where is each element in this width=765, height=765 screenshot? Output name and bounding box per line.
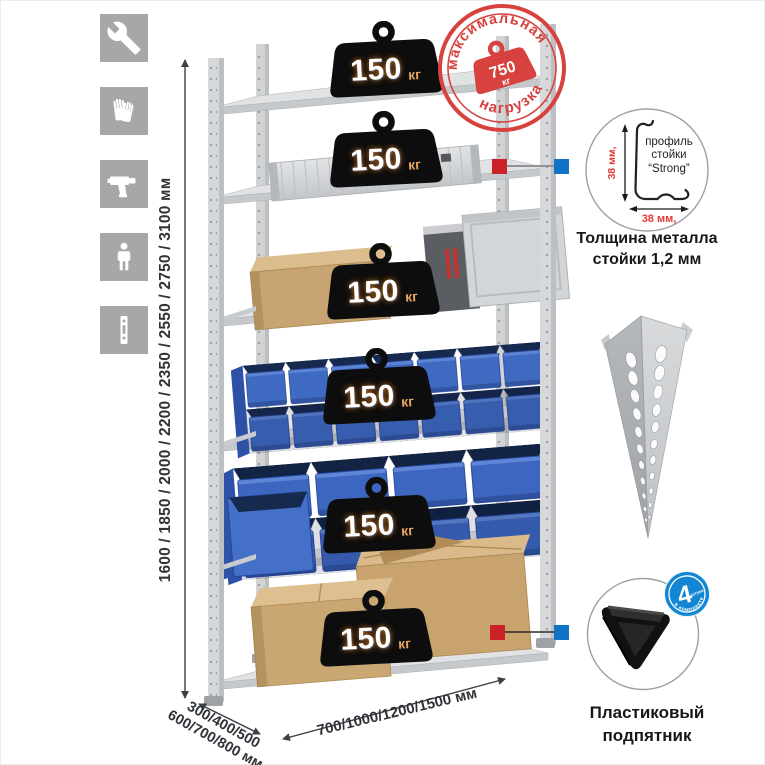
post-profile-detail: 38 мм, 38 мм, профиль стойки “Strong” [584, 107, 710, 233]
svg-text:“Strong”: “Strong” [648, 163, 690, 175]
wrench-icon [100, 14, 148, 62]
shelf-load-badge-1: 150кг [321, 18, 449, 102]
infographic-shelving-unit: 1600 / 1850 / 2000 / 2200 / 2350 / 2550 … [0, 0, 765, 765]
foot-caption: Пластиковый подпятник [557, 701, 737, 747]
svg-text:38 мм,: 38 мм, [642, 213, 677, 225]
drill-icon [100, 160, 148, 208]
shelf-load-badge-3: 150кг [318, 240, 446, 324]
person-icon [100, 233, 148, 281]
gloves-icon [100, 87, 148, 135]
shelf-load-badge-2: 150кг [321, 108, 449, 192]
max-load-stamp: максимальная нагрузка 750 кг [434, 0, 570, 136]
svg-text:профиль: профиль [645, 136, 693, 148]
shelf-load-badge-6: 150кг [311, 587, 439, 671]
shelf-load-badge-4: 150кг [314, 345, 442, 429]
corner-post-image [595, 296, 699, 554]
callout-marker-blue-top [554, 159, 569, 174]
callout-marker-blue-bottom [554, 625, 569, 640]
rack-post-icon [100, 306, 148, 354]
shelf-load-badge-5: 150кг [314, 474, 442, 558]
callout-marker-red-top [492, 159, 507, 174]
callout-marker-red-bottom [490, 625, 505, 640]
svg-text:38 мм,: 38 мм, [606, 146, 618, 179]
profile-caption: Толщина металла стойки 1,2 мм [557, 228, 737, 270]
height-dimension-label: 1600 / 1850 / 2000 / 2200 / 2350 / 2550 … [157, 178, 175, 583]
included-count-badge: 4 штуки в комплекте [664, 571, 710, 617]
rack-post-front-left [204, 58, 224, 706]
svg-text:стойки: стойки [651, 149, 686, 161]
